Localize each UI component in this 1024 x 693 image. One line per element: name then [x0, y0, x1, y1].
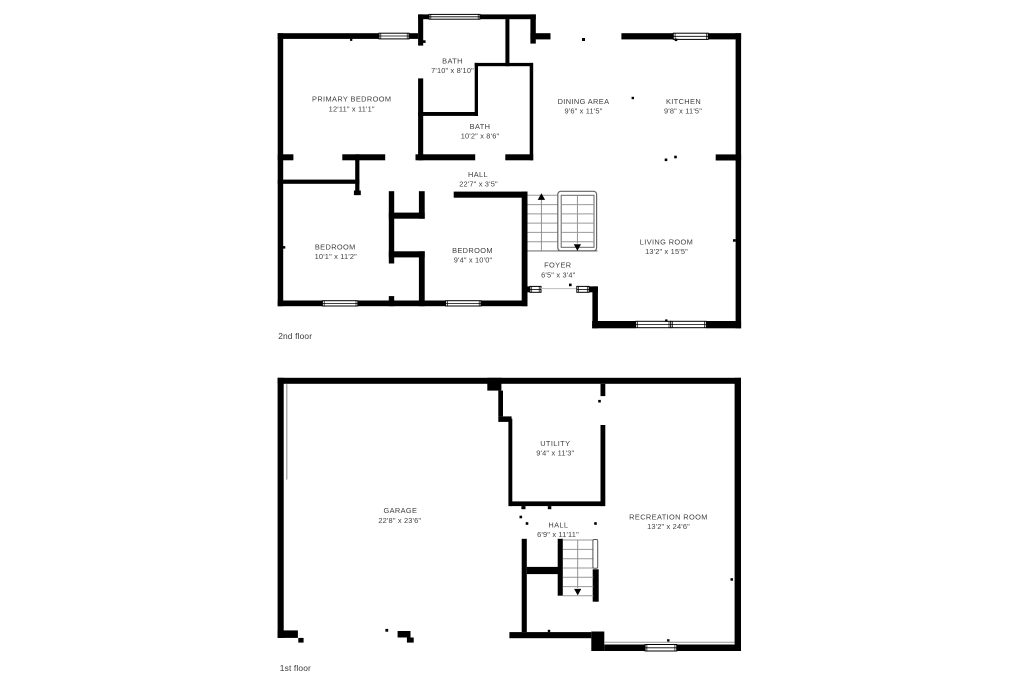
svg-text:GARAGE: GARAGE — [383, 506, 417, 515]
svg-text:2nd floor: 2nd floor — [278, 331, 312, 341]
svg-text:10'2" x 8'6": 10'2" x 8'6" — [461, 132, 500, 141]
svg-text:22'8" x 23'6": 22'8" x 23'6" — [378, 516, 421, 525]
svg-text:BEDROOM: BEDROOM — [452, 246, 493, 255]
svg-text:BEDROOM: BEDROOM — [315, 242, 356, 251]
svg-text:7'10" x 8'10": 7'10" x 8'10" — [431, 66, 474, 75]
svg-text:12'11" x 11'1": 12'11" x 11'1" — [329, 104, 375, 113]
svg-text:1st floor: 1st floor — [280, 663, 311, 673]
svg-text:RECREATION ROOM: RECREATION ROOM — [629, 512, 708, 521]
svg-text:BATH: BATH — [470, 122, 491, 131]
svg-text:6'5" x 3'4": 6'5" x 3'4" — [541, 270, 575, 279]
svg-text:9'6" x 11'5": 9'6" x 11'5" — [564, 107, 602, 116]
svg-text:22'7" x 3'5": 22'7" x 3'5" — [459, 180, 498, 189]
svg-text:UTILITY: UTILITY — [540, 439, 570, 448]
svg-text:LIVING ROOM: LIVING ROOM — [640, 237, 693, 246]
svg-text:13'2" x 15'5": 13'2" x 15'5" — [645, 247, 688, 256]
svg-text:FOYER: FOYER — [544, 261, 571, 270]
svg-text:HALL: HALL — [468, 170, 488, 179]
svg-text:9'4" x 11'3": 9'4" x 11'3" — [536, 449, 574, 458]
svg-text:KITCHEN: KITCHEN — [666, 97, 701, 106]
svg-text:9'4" x 10'0": 9'4" x 10'0" — [454, 256, 493, 265]
svg-text:HALL: HALL — [548, 520, 568, 529]
svg-text:10'1" x 11'2": 10'1" x 11'2" — [315, 252, 358, 261]
svg-text:PRIMARY BEDROOM: PRIMARY BEDROOM — [312, 95, 391, 104]
svg-text:9'8" x 11'5": 9'8" x 11'5" — [664, 107, 702, 116]
svg-text:BATH: BATH — [442, 56, 463, 65]
svg-text:DINING AREA: DINING AREA — [558, 97, 610, 106]
svg-text:13'2" x 24'6": 13'2" x 24'6" — [647, 522, 690, 531]
svg-text:6'9" x 11'11": 6'9" x 11'11" — [537, 530, 579, 539]
